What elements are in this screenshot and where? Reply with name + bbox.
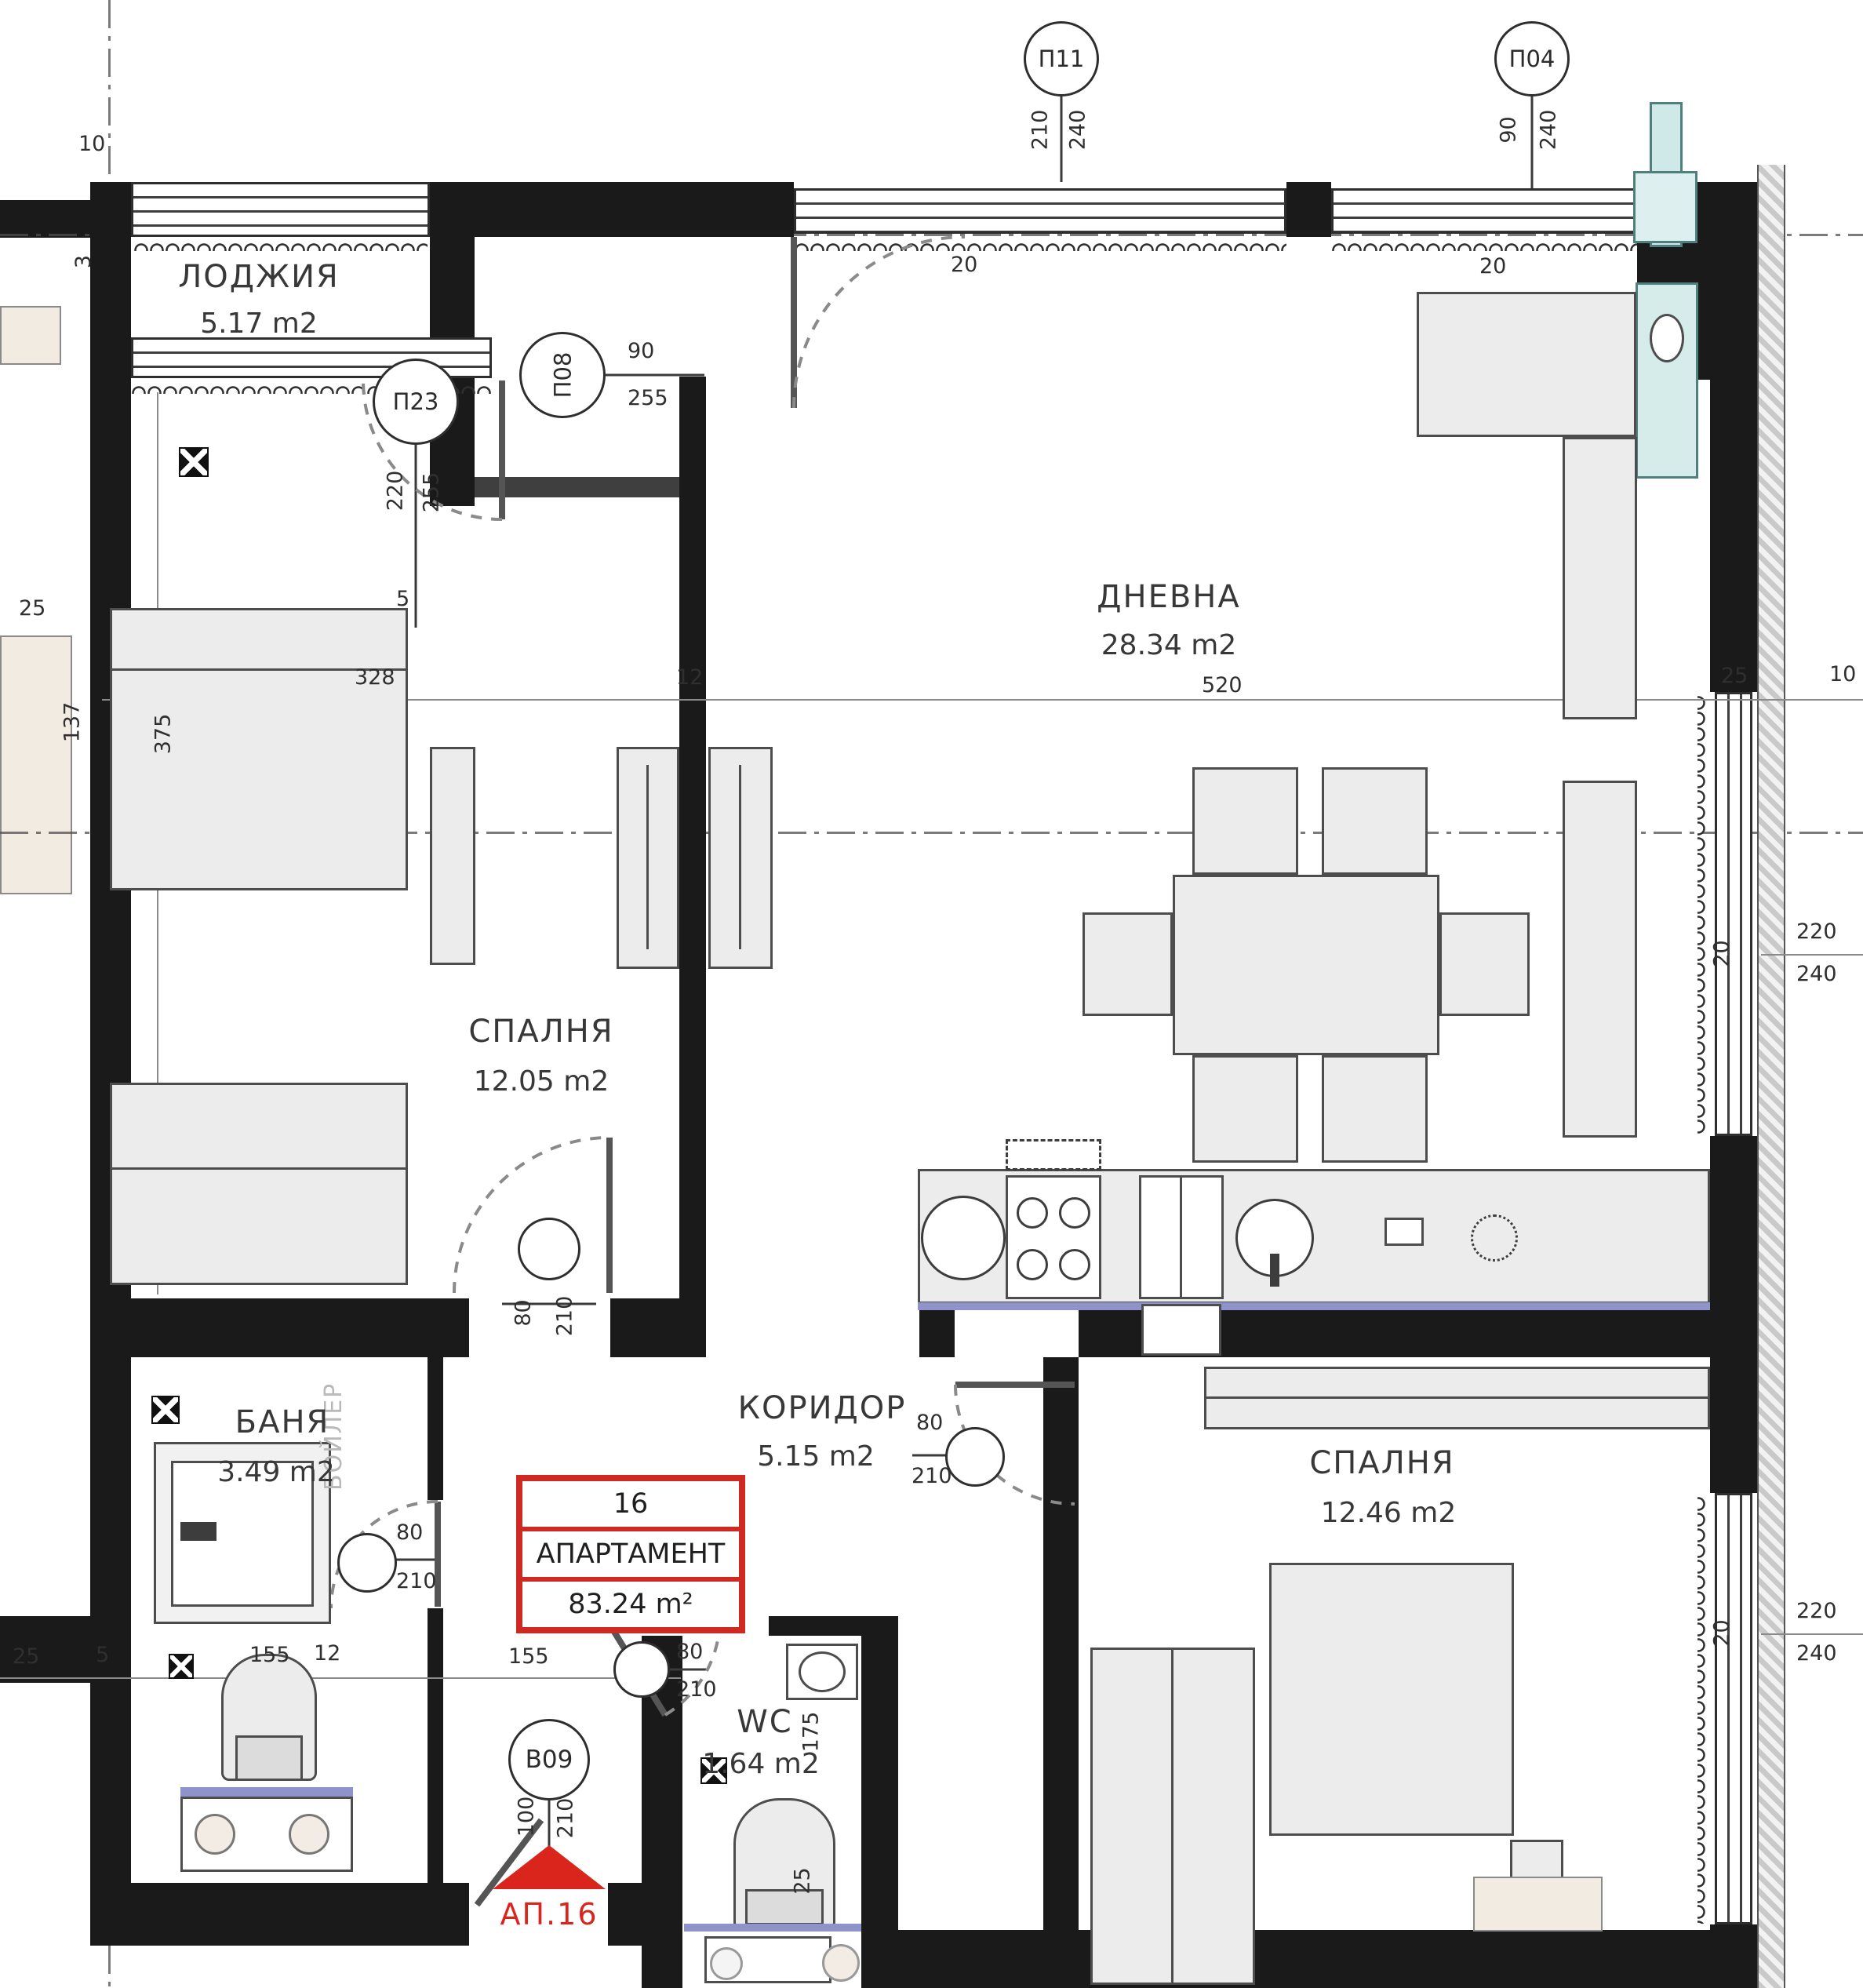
entry-dim-h: 210 <box>553 1798 577 1839</box>
dresser-line <box>112 1167 406 1170</box>
dim-25-wc: 25 <box>791 1867 815 1894</box>
door-dim-bedroom1 <box>518 1218 580 1280</box>
wardrobe-line <box>646 765 649 949</box>
dim-328: 328 <box>355 665 395 690</box>
chair <box>1192 767 1298 875</box>
counter-edge <box>918 1302 1710 1310</box>
chair <box>1439 912 1530 1016</box>
stove <box>1006 1175 1101 1299</box>
shelf-line <box>1206 1396 1708 1399</box>
dim-p04-h: 240 <box>1536 110 1560 151</box>
dim-20-rwin2: 20 <box>1710 1619 1734 1646</box>
dim-3-left: 3 <box>71 255 96 268</box>
bench <box>1473 1877 1603 1932</box>
marker-b09-id: В09 <box>526 1746 573 1774</box>
dim-20-rwin1: 20 <box>1710 940 1734 967</box>
apartment-area: 83.24 m² <box>522 1577 739 1627</box>
entry-arrow <box>493 1845 606 1889</box>
chair <box>1322 1055 1428 1163</box>
dim-p23-h: 255 <box>419 472 443 513</box>
door-dim-bedroom1-w: 80 <box>511 1299 536 1326</box>
door-dim-wc <box>613 1641 670 1698</box>
dim-20-top1: 20 <box>951 253 977 277</box>
sideboard-living <box>1417 292 1636 437</box>
door-arc-terrace <box>794 237 965 408</box>
dim-p11-h: 240 <box>1065 110 1090 151</box>
dim-p11-w: 210 <box>1028 110 1052 151</box>
cabinet-bedroom1 <box>430 747 475 965</box>
room-corridor-name: КОРИДОР <box>738 1390 907 1426</box>
room-living-area: 28.34 m2 <box>1101 629 1236 661</box>
door-dim-bath-w: 80 <box>396 1520 423 1545</box>
room-loggia-name: ЛОДЖИЯ <box>178 259 340 295</box>
room-bedroom1-name: СПАЛНЯ <box>468 1014 613 1050</box>
entry-dim-w: 100 <box>514 1797 538 1837</box>
room-wc-area: 1.64 m2 <box>702 1748 820 1780</box>
burner <box>1059 1249 1090 1280</box>
room-bath-area: 3.49 m2 <box>217 1456 335 1488</box>
room-wc-name: WC <box>737 1704 792 1740</box>
tall-unit-living2 <box>1563 781 1637 1138</box>
floor-plan: БОЙЛЕР П11 210 240 П04 90 240 П23 220 25… <box>0 0 1863 1988</box>
cabinet-line <box>739 765 741 949</box>
marker-p23-id: П23 <box>393 388 439 415</box>
entry-label: АП.16 <box>500 1897 598 1932</box>
apartment-tag: 16 АПАРТАМЕНТ 83.24 m² <box>516 1475 745 1633</box>
room-corridor-area: 5.15 m2 <box>757 1440 875 1473</box>
room-bedroom1-area: 12.05 m2 <box>474 1065 609 1098</box>
dim-520: 520 <box>1202 673 1243 697</box>
dim-20-top2: 20 <box>1479 254 1506 279</box>
tall-unit-living <box>1563 437 1637 719</box>
burner <box>1017 1249 1048 1280</box>
dim-p23-w: 220 <box>383 471 407 512</box>
room-bedroom2-name: СПАЛНЯ <box>1309 1445 1454 1481</box>
dim-25-right: 25 <box>1721 664 1748 688</box>
dim-p04-w: 90 <box>1497 116 1521 143</box>
dim-175-wc: 175 <box>799 1712 823 1753</box>
dim-5-bottom: 5 <box>96 1643 109 1667</box>
marker-p23: П23 <box>373 359 459 445</box>
dim-p08-h: 255 <box>628 386 668 410</box>
wardrobe-divider <box>1171 1650 1173 1983</box>
burner <box>1017 1197 1048 1229</box>
chair <box>1083 912 1173 1016</box>
dim-155-corridor: 155 <box>508 1644 549 1669</box>
chair <box>1322 767 1428 875</box>
bath-tap <box>180 1522 217 1541</box>
marker-b09: В09 <box>508 1719 590 1800</box>
door-dim-wc-h: 210 <box>676 1677 717 1702</box>
cabinet-divider <box>1180 1178 1182 1297</box>
apartment-number: 16 <box>522 1481 739 1527</box>
marker-p11-id: П11 <box>1039 46 1085 72</box>
bed-bedroom2 <box>1269 1563 1514 1836</box>
door-dim-bath <box>337 1533 397 1593</box>
hood-dashed <box>1006 1139 1101 1171</box>
drain-marker <box>179 447 209 477</box>
dim-155-bath: 155 <box>249 1643 290 1667</box>
drain-marker <box>169 1654 194 1679</box>
wc-sink-oval <box>799 1651 846 1692</box>
drain-marker <box>151 1396 180 1424</box>
toilet-seat <box>235 1735 303 1781</box>
door-dim-wc-w: 80 <box>676 1640 703 1664</box>
marker-p04: П04 <box>1494 21 1570 96</box>
dresser-bedroom1 <box>110 1083 408 1285</box>
vanity-edge <box>180 1787 353 1797</box>
knob <box>822 1944 860 1982</box>
dim-25-left: 25 <box>19 596 45 621</box>
apartment-label: АПАРТАМЕНТ <box>522 1527 739 1577</box>
counter-item <box>1385 1218 1424 1246</box>
dining-table <box>1173 875 1439 1055</box>
door-dim-bath-h: 210 <box>396 1569 437 1593</box>
kitchen-sink <box>921 1196 1006 1280</box>
dim-5-window: 5 <box>396 587 409 611</box>
knob <box>289 1814 329 1855</box>
marker-p08-id: П08 <box>549 352 576 399</box>
sink-tap <box>1270 1254 1279 1287</box>
door-dim-bedroom1-h: 210 <box>552 1296 577 1337</box>
toilet-tank <box>745 1889 824 1925</box>
dim-220-rwin1: 220 <box>1796 919 1837 944</box>
counter-deco <box>1471 1214 1518 1262</box>
dim-220-rwin2: 220 <box>1796 1599 1837 1623</box>
knob <box>195 1814 235 1855</box>
dim-12-bath: 12 <box>314 1641 340 1666</box>
chair <box>1192 1055 1298 1163</box>
marker-p04-id: П04 <box>1509 46 1556 72</box>
room-living-name: ДНЕВНА <box>1097 579 1240 615</box>
dim-240-rwin2: 240 <box>1796 1641 1837 1666</box>
dim-137-left: 137 <box>60 702 84 743</box>
room-bath-name: БАНЯ <box>235 1404 330 1440</box>
knob <box>710 1947 743 1980</box>
dim-10-topleft: 10 <box>78 132 105 156</box>
door-dim-bedroom2-h: 210 <box>911 1464 952 1488</box>
door-dim-bedroom2 <box>945 1427 1005 1487</box>
dim-375-bedroom1: 375 <box>151 714 175 755</box>
dim-12: 12 <box>676 665 703 690</box>
dim-10-right: 10 <box>1829 662 1856 686</box>
vanity-edge <box>684 1924 861 1932</box>
dim-240-rwin1: 240 <box>1796 962 1837 986</box>
door-dim-bedroom2-w: 80 <box>916 1411 943 1435</box>
marker-p11: П11 <box>1024 21 1099 96</box>
burner <box>1059 1197 1090 1229</box>
room-loggia-area: 5.17 m2 <box>200 308 318 340</box>
dishwasher-front <box>1141 1304 1221 1356</box>
marker-p08: П08 <box>519 332 606 418</box>
dim-25-bottom: 25 <box>13 1644 39 1669</box>
dim-p08-w: 90 <box>628 339 654 363</box>
room-bedroom2-area: 12.46 m2 <box>1321 1497 1456 1529</box>
